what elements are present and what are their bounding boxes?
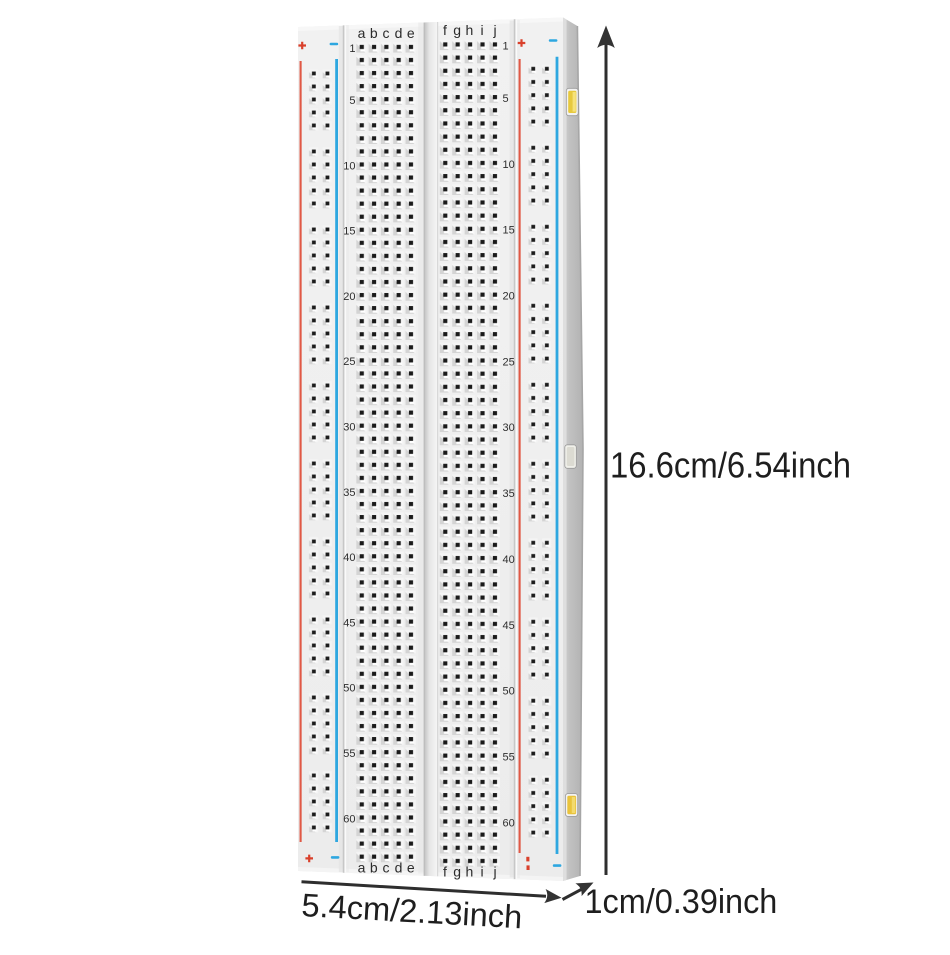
svg-text:i: i [480,22,483,38]
svg-text:25: 25 [343,356,355,368]
svg-text:1: 1 [503,40,509,52]
svg-text:25: 25 [503,356,515,368]
svg-text:i: i [480,864,483,880]
svg-text:c: c [383,860,390,876]
svg-text:30: 30 [503,422,515,434]
svg-text:f: f [443,22,447,38]
svg-text:15: 15 [503,225,515,237]
svg-text:10: 10 [343,160,355,172]
svg-text:e: e [407,25,415,41]
svg-text:60: 60 [503,817,515,829]
svg-text:40: 40 [343,552,355,564]
svg-text:20: 20 [343,291,355,303]
svg-text:5: 5 [349,95,355,107]
svg-text:45: 45 [503,620,515,632]
svg-text:5: 5 [503,93,509,105]
svg-text:e: e [407,860,415,876]
svg-text:1cm/0.39inch: 1cm/0.39inch [585,883,778,921]
svg-text:h: h [466,864,474,880]
svg-text:f: f [443,864,447,880]
svg-text:a: a [358,25,366,41]
svg-text:50: 50 [503,686,515,698]
svg-text:g: g [453,22,461,38]
svg-text:g: g [453,864,461,880]
svg-text:40: 40 [503,554,515,566]
svg-text:j: j [492,864,496,880]
svg-text:h: h [466,22,474,38]
svg-text:55: 55 [503,751,515,763]
svg-text:b: b [370,860,378,876]
svg-text:55: 55 [343,748,355,760]
svg-text:a: a [358,860,366,876]
svg-text:d: d [395,860,403,876]
svg-text:45: 45 [343,617,355,629]
svg-text:35: 35 [343,487,355,499]
svg-text:15: 15 [343,226,355,238]
svg-text:j: j [492,22,496,38]
svg-text:b: b [370,25,378,41]
svg-text:20: 20 [503,291,515,303]
svg-text:16.6cm/6.54inch: 16.6cm/6.54inch [610,446,851,486]
svg-text:c: c [383,25,390,41]
svg-text:50: 50 [343,683,355,695]
svg-text:30: 30 [343,422,355,434]
svg-text:d: d [395,25,403,41]
svg-text:10: 10 [503,159,515,171]
svg-text:60: 60 [343,813,355,825]
svg-text:1: 1 [349,43,355,55]
svg-text:35: 35 [503,488,515,500]
